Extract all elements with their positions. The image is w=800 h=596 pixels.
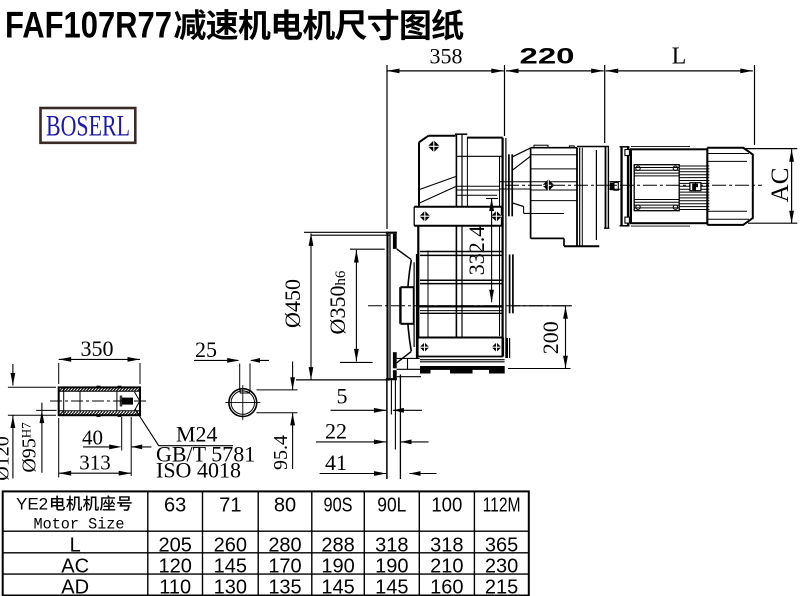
svg-text:L: L (672, 44, 687, 70)
svg-text:145: 145 (321, 577, 354, 596)
svg-text:318: 318 (375, 535, 408, 557)
svg-text:260: 260 (214, 535, 247, 557)
svg-text:288: 288 (321, 535, 354, 557)
svg-text:230: 230 (485, 556, 518, 578)
svg-text:40: 40 (82, 426, 103, 450)
svg-text:90S: 90S (324, 495, 353, 517)
svg-text:280: 280 (268, 535, 301, 557)
svg-text:215: 215 (485, 577, 518, 596)
svg-text:318: 318 (430, 535, 463, 557)
svg-text:332.4: 332.4 (464, 226, 489, 276)
svg-text:100: 100 (431, 495, 462, 517)
svg-text:145: 145 (214, 556, 247, 578)
svg-text:205: 205 (158, 535, 191, 557)
svg-text:160: 160 (430, 577, 463, 596)
svg-text:220: 220 (520, 44, 575, 69)
svg-text:170: 170 (268, 556, 301, 578)
svg-text:350: 350 (81, 336, 114, 361)
svg-text:190: 190 (375, 556, 408, 578)
svg-text:41: 41 (325, 450, 347, 475)
svg-text:200: 200 (538, 321, 563, 354)
svg-text:145: 145 (375, 577, 408, 596)
svg-text:AC: AC (61, 556, 89, 578)
svg-text:FAF107R77: FAF107R77 (5, 5, 172, 46)
svg-text:25: 25 (195, 337, 217, 362)
svg-text:358: 358 (430, 44, 463, 69)
svg-text:313: 313 (79, 451, 111, 475)
svg-text:AC: AC (767, 168, 794, 203)
svg-text:71: 71 (219, 495, 241, 517)
svg-text:190: 190 (321, 556, 354, 578)
svg-text:95.4: 95.4 (270, 435, 292, 470)
svg-text:365: 365 (485, 535, 518, 557)
svg-text:63: 63 (164, 495, 186, 517)
svg-text:120: 120 (158, 556, 191, 578)
svg-text:BOSERL: BOSERL (46, 110, 130, 143)
svg-text:112M: 112M (483, 495, 521, 517)
svg-text:Ø120: Ø120 (0, 436, 14, 480)
svg-text:130: 130 (214, 577, 247, 596)
svg-text:80: 80 (274, 495, 296, 517)
svg-text:Motor Size: Motor Size (34, 516, 125, 534)
svg-text:Ø450: Ø450 (280, 279, 305, 328)
svg-text:AD: AD (61, 577, 89, 596)
svg-text:135: 135 (268, 577, 301, 596)
svg-text:210: 210 (430, 556, 463, 578)
svg-text:ISO 4018: ISO 4018 (156, 458, 241, 483)
svg-text:5: 5 (337, 384, 348, 409)
svg-text:L: L (70, 535, 81, 557)
svg-text:110: 110 (159, 577, 191, 596)
svg-text:22: 22 (325, 419, 347, 444)
svg-text:90L: 90L (377, 495, 406, 517)
svg-text:YE2: YE2 (16, 495, 48, 514)
